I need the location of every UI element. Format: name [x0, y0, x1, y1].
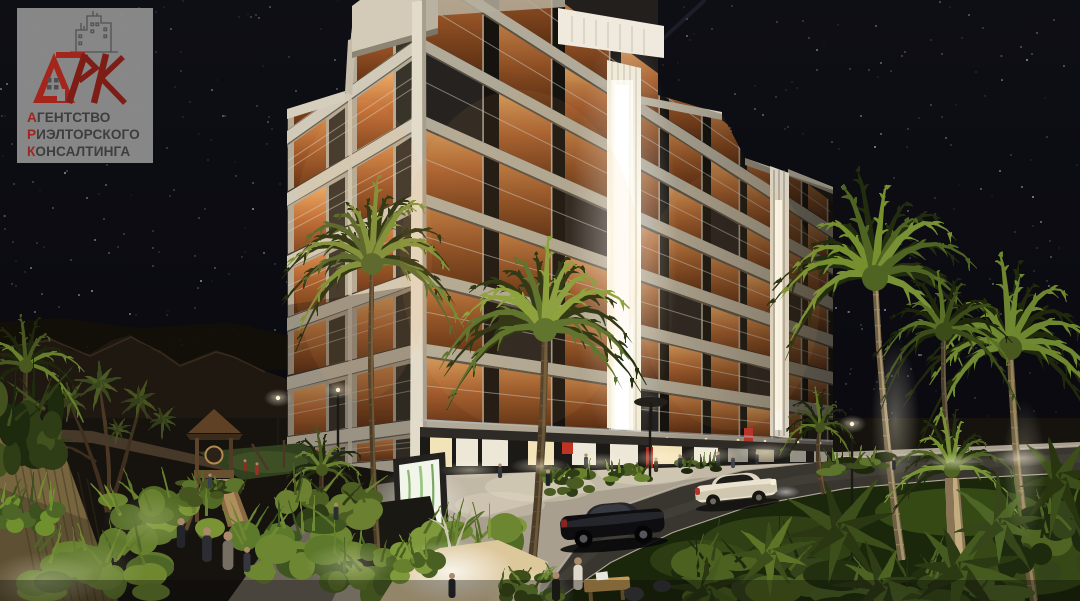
svg-text:РИЭЛТОРСКОГО: РИЭЛТОРСКОГО: [27, 127, 140, 142]
svg-text:КОНСАЛТИНГА: КОНСАЛТИНГА: [27, 144, 130, 159]
svg-text:АГЕНТСТВО: АГЕНТСТВО: [27, 110, 110, 125]
